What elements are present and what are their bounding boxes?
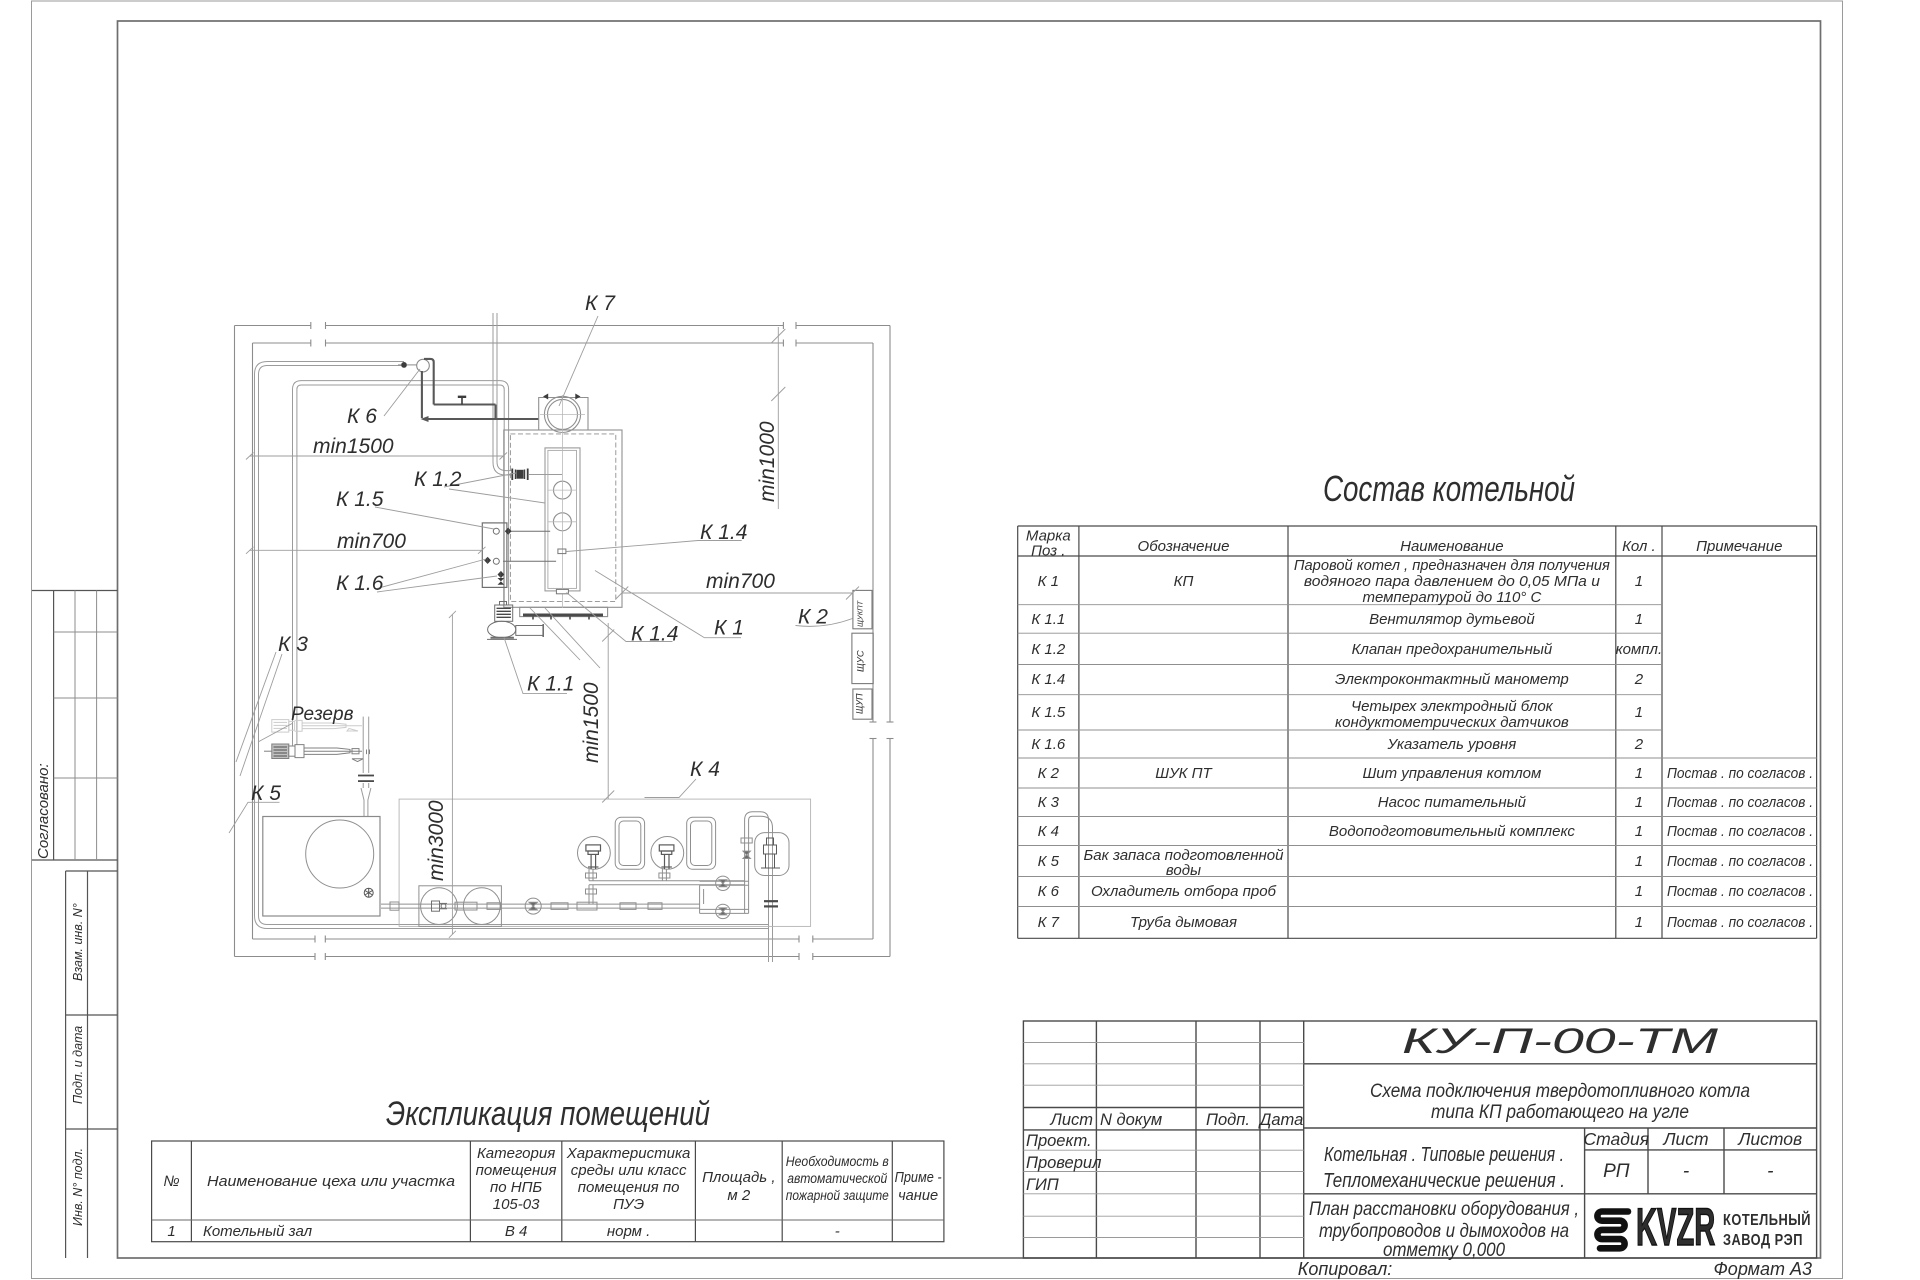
- svg-text:Наименование: Наименование: [1400, 538, 1504, 555]
- svg-text:КУ-П-00-ТМ: КУ-П-00-ТМ: [1402, 1022, 1719, 1061]
- svg-text:Наименование цеха или участка: Наименование цеха или участка: [207, 1173, 455, 1190]
- svg-text:компл.: компл.: [1616, 641, 1663, 658]
- svg-text:К 3: К 3: [278, 633, 308, 656]
- svg-text:Резерв: Резерв: [291, 704, 354, 725]
- svg-text:ЗАВОД РЭП: ЗАВОД РЭП: [1723, 1232, 1803, 1249]
- svg-text:К 7: К 7: [1038, 914, 1060, 931]
- svg-text:К 1.5: К 1.5: [336, 488, 384, 511]
- svg-text:Указатель уровня: Указатель уровня: [1387, 736, 1517, 753]
- svg-text:автоматической: автоматической: [787, 1171, 887, 1186]
- svg-text:105-03: 105-03: [493, 1196, 540, 1213]
- svg-text:К 5: К 5: [251, 782, 281, 805]
- svg-text:К 1.1: К 1.1: [1031, 611, 1065, 628]
- svg-text:РП: РП: [1603, 1161, 1630, 1182]
- svg-text:min1000: min1000: [756, 421, 779, 502]
- svg-text:кондуктометрических датчиков: кондуктометрических датчиков: [1335, 714, 1569, 731]
- svg-text:Примечание: Примечание: [1696, 538, 1782, 555]
- svg-text:1: 1: [1635, 573, 1643, 590]
- svg-text:Насос питательный: Насос питательный: [1378, 794, 1527, 811]
- svg-text:В 4: В 4: [505, 1223, 528, 1240]
- svg-text:ШУК ПТ: ШУК ПТ: [1155, 765, 1213, 782]
- svg-text:Подп. и дата: Подп. и дата: [71, 1026, 85, 1104]
- svg-text:1: 1: [167, 1223, 175, 1240]
- svg-text:Паровой котел , предназначен д: Паровой котел , предназначен для получен…: [1294, 557, 1610, 574]
- svg-text:1: 1: [1635, 794, 1643, 811]
- svg-text:типа КП работающего на угле: типа КП работающего на угле: [1431, 1101, 1689, 1123]
- svg-text:Характеристика: Характеристика: [566, 1145, 691, 1162]
- svg-text:1: 1: [1635, 704, 1643, 721]
- svg-text:К 6: К 6: [1038, 883, 1060, 900]
- svg-text:1: 1: [1635, 765, 1643, 782]
- svg-text:К 1: К 1: [714, 617, 744, 640]
- svg-text:min1500: min1500: [313, 435, 394, 458]
- svg-text:Лист: Лист: [1662, 1129, 1708, 1149]
- svg-text:К 6: К 6: [347, 405, 377, 428]
- svg-text:К 1.5: К 1.5: [1031, 704, 1066, 721]
- svg-text:Труба дымовая: Труба дымовая: [1130, 914, 1237, 931]
- svg-text:Тепломеханические решения .: Тепломеханические решения .: [1323, 1170, 1565, 1192]
- svg-text:Постав . по согласов .: Постав . по согласов .: [1667, 765, 1813, 782]
- svg-text:№: №: [163, 1173, 179, 1190]
- svg-text:водяного пара давлением до 0,: водяного пара давлением до 0,05 МПа и: [1304, 573, 1601, 590]
- svg-text:К 4: К 4: [690, 758, 720, 781]
- svg-text:Кол .: Кол .: [1622, 538, 1656, 555]
- svg-text:Вентилятор дутьевой: Вентилятор дутьевой: [1369, 611, 1535, 628]
- svg-text:воды: воды: [1166, 862, 1201, 879]
- svg-text:К 1.4: К 1.4: [631, 623, 678, 646]
- svg-text:К 1.2: К 1.2: [414, 468, 462, 491]
- svg-text:ГИП: ГИП: [1026, 1176, 1059, 1194]
- svg-text:отметку 0,000: отметку 0,000: [1383, 1239, 1505, 1261]
- svg-text:Лист: Лист: [1050, 1111, 1093, 1129]
- svg-text:Электроконтактный манометр: Электроконтактный манометр: [1335, 671, 1569, 688]
- svg-text:К 1.1: К 1.1: [527, 673, 574, 696]
- svg-text:Четырех электродный блок: Четырех электродный блок: [1351, 698, 1554, 715]
- svg-text:2: 2: [1634, 671, 1644, 688]
- svg-text:min700: min700: [337, 530, 406, 553]
- svg-text:К 7: К 7: [585, 292, 616, 315]
- svg-text:К 1.4: К 1.4: [700, 521, 747, 544]
- svg-text:-: -: [835, 1223, 840, 1240]
- svg-text:Состав котельной: Состав котельной: [1323, 468, 1575, 509]
- svg-text:К 1: К 1: [1038, 573, 1059, 590]
- svg-text:по НПБ: по НПБ: [490, 1179, 542, 1196]
- svg-text:КП: КП: [1174, 573, 1194, 590]
- svg-text:Котельный зал: Котельный зал: [203, 1223, 313, 1240]
- svg-text:К 1.4: К 1.4: [1031, 671, 1065, 688]
- svg-text:Охладитель отбора проб: Охладитель отбора проб: [1091, 883, 1277, 900]
- svg-text:К 2: К 2: [1038, 765, 1060, 782]
- svg-text:м 2: м 2: [727, 1187, 750, 1204]
- svg-text:Необходимость в: Необходимость в: [786, 1154, 889, 1169]
- svg-text:Приме -: Приме -: [895, 1169, 942, 1186]
- svg-text:температурой до 110° С: температурой до 110° С: [1362, 589, 1541, 606]
- svg-text:Стадия: Стадия: [1584, 1129, 1650, 1149]
- svg-text:Шит управления котлом: Шит управления котлом: [1362, 765, 1541, 782]
- svg-text:ЩУП: ЩУП: [855, 693, 865, 714]
- svg-text:1: 1: [1635, 914, 1643, 931]
- svg-text:Постав . по согласов .: Постав . по согласов .: [1667, 883, 1813, 900]
- svg-text:К 3: К 3: [1038, 794, 1060, 811]
- svg-text:помещения по: помещения по: [578, 1179, 680, 1196]
- svg-text:Площадь ,: Площадь ,: [702, 1169, 775, 1186]
- svg-text:КОТЕЛЬНЫЙ: КОТЕЛЬНЫЙ: [1723, 1211, 1811, 1229]
- svg-text:-: -: [1683, 1161, 1689, 1182]
- svg-text:N докум: N докум: [1100, 1111, 1162, 1129]
- svg-text:Инв. N° подл.: Инв. N° подл.: [71, 1148, 85, 1226]
- svg-text:чание: чание: [898, 1187, 938, 1204]
- svg-text:min700: min700: [706, 570, 775, 593]
- svg-text:Поз .: Поз .: [1031, 543, 1065, 560]
- svg-text:1: 1: [1635, 853, 1643, 870]
- svg-text:пожарной защите: пожарной защите: [786, 1188, 889, 1203]
- svg-text:Обозначение: Обозначение: [1138, 538, 1230, 555]
- svg-text:-: -: [1767, 1161, 1773, 1182]
- svg-text:Взам. инв. N°: Взам. инв. N°: [71, 903, 85, 981]
- svg-text:помещения: помещения: [476, 1162, 557, 1179]
- svg-text:К 1.6: К 1.6: [336, 572, 384, 595]
- svg-text:KVZR: KVZR: [1636, 1198, 1715, 1257]
- svg-text:min1500: min1500: [580, 682, 603, 763]
- svg-text:К 2: К 2: [798, 606, 828, 629]
- svg-text:К 1.2: К 1.2: [1031, 641, 1066, 658]
- svg-text:1: 1: [1635, 823, 1643, 840]
- svg-text:min3000: min3000: [425, 800, 448, 881]
- svg-text:среды или класс: среды или класс: [571, 1162, 687, 1179]
- svg-text:План расстановки оборудования: План расстановки оборудования ,: [1309, 1198, 1579, 1220]
- svg-text:ЩУКПТ: ЩУКПТ: [856, 599, 865, 627]
- svg-text:1: 1: [1635, 611, 1643, 628]
- svg-text:Дата: Дата: [1258, 1111, 1304, 1129]
- svg-text:2: 2: [1634, 736, 1644, 753]
- svg-text:Формат А3: Формат А3: [1714, 1259, 1813, 1279]
- svg-text:Водоподготовительный комплекс: Водоподготовительный комплекс: [1329, 823, 1575, 840]
- svg-text:Проверил: Проверил: [1026, 1154, 1101, 1172]
- svg-text:Котельная . Типовые решения .: Котельная . Типовые решения .: [1324, 1144, 1564, 1166]
- svg-text:К 4: К 4: [1038, 823, 1059, 840]
- svg-text:К 5: К 5: [1038, 853, 1060, 870]
- svg-text:Копировал:: Копировал:: [1298, 1259, 1393, 1279]
- svg-text:К 1.6: К 1.6: [1031, 736, 1066, 753]
- svg-text:Постав . по согласов .: Постав . по согласов .: [1667, 914, 1813, 931]
- svg-text:Экспликация помещений: Экспликация помещений: [386, 1095, 710, 1133]
- svg-text:Постав . по согласов .: Постав . по согласов .: [1667, 823, 1813, 840]
- svg-text:Согласовано:: Согласовано:: [35, 763, 52, 859]
- svg-text:Подп.: Подп.: [1206, 1111, 1250, 1129]
- svg-text:Схема подключения твердотоплив: Схема подключения твердотопливного котла: [1370, 1080, 1750, 1102]
- svg-text:Клапан предохранительный: Клапан предохранительный: [1352, 641, 1553, 658]
- svg-text:Листов: Листов: [1737, 1129, 1802, 1149]
- svg-text:Категория: Категория: [477, 1145, 555, 1162]
- svg-text:1: 1: [1635, 883, 1643, 900]
- svg-text:норм .: норм .: [607, 1223, 650, 1240]
- svg-text:ПУЭ: ПУЭ: [613, 1196, 644, 1213]
- svg-text:Постав . по согласов .: Постав . по согласов .: [1667, 853, 1813, 870]
- svg-text:ЩУС: ЩУС: [856, 650, 867, 672]
- svg-text:Проект.: Проект.: [1026, 1132, 1092, 1150]
- svg-text:Постав . по согласов .: Постав . по согласов .: [1667, 794, 1813, 811]
